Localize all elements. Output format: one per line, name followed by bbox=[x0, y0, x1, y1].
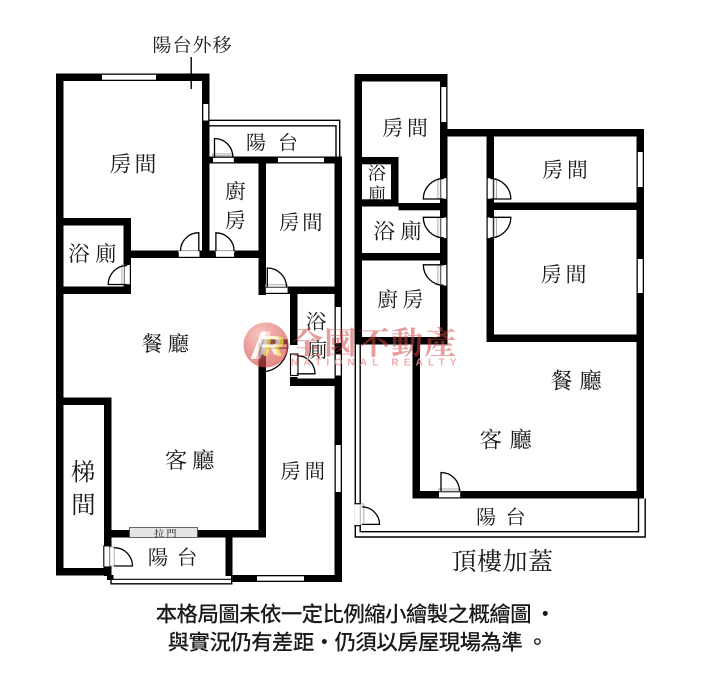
svg-text:R: R bbox=[261, 331, 281, 361]
svg-text:NATIONAL REALTY: NATIONAL REALTY bbox=[291, 358, 462, 369]
